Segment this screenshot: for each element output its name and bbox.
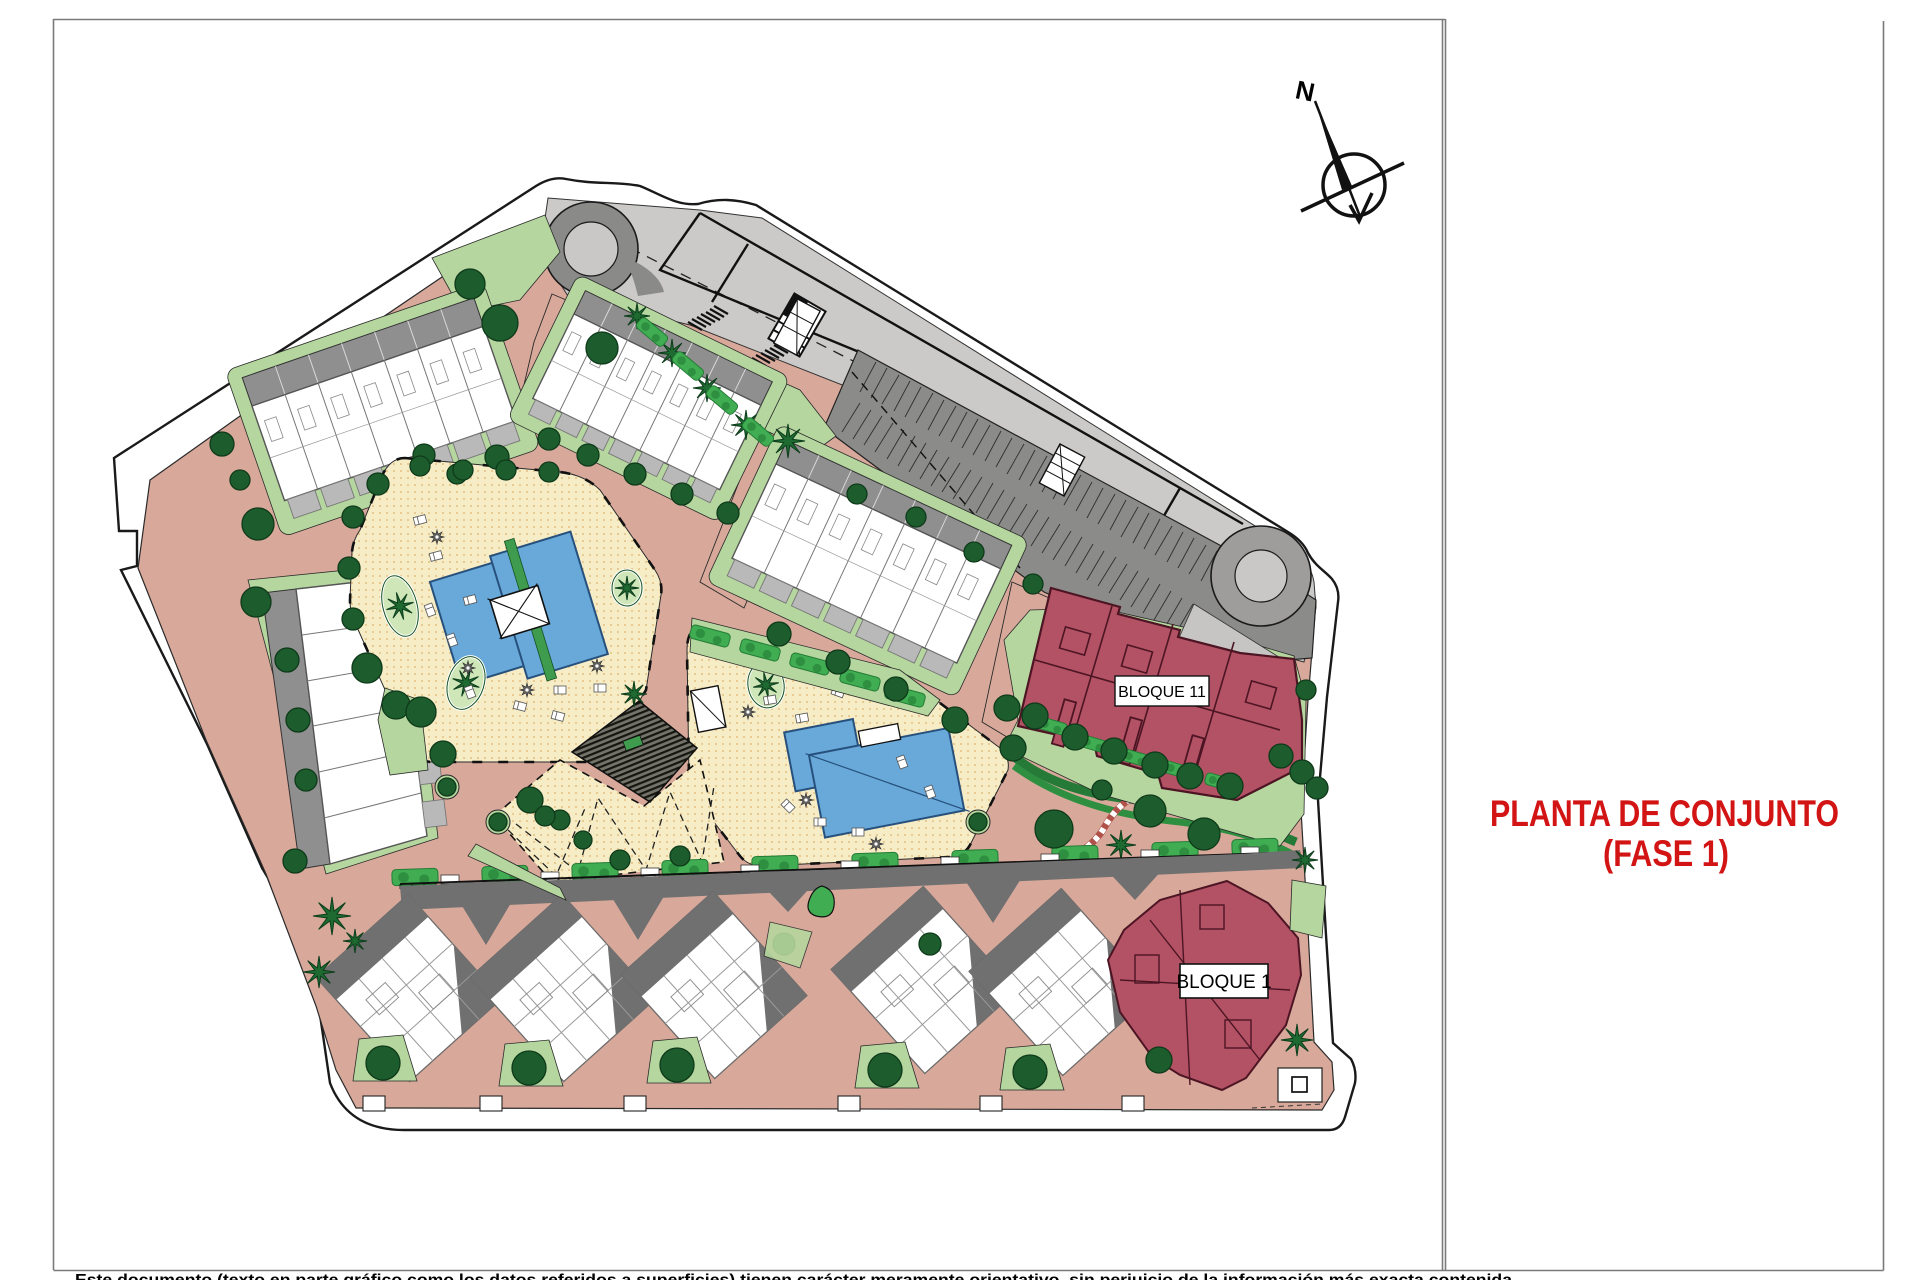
- svg-text:Este documento (texto en parte: Este documento (texto en parte gráfico c…: [75, 1272, 1512, 1280]
- svg-text:PLANTA DE CONJUNTO: PLANTA DE CONJUNTO: [1490, 793, 1839, 834]
- svg-text:BLOQUE 1: BLOQUE 1: [1176, 972, 1271, 993]
- svg-text:N: N: [1293, 74, 1318, 107]
- svg-text:(FASE 1): (FASE 1): [1603, 833, 1729, 874]
- svg-text:BLOQUE 11: BLOQUE 11: [1118, 684, 1206, 701]
